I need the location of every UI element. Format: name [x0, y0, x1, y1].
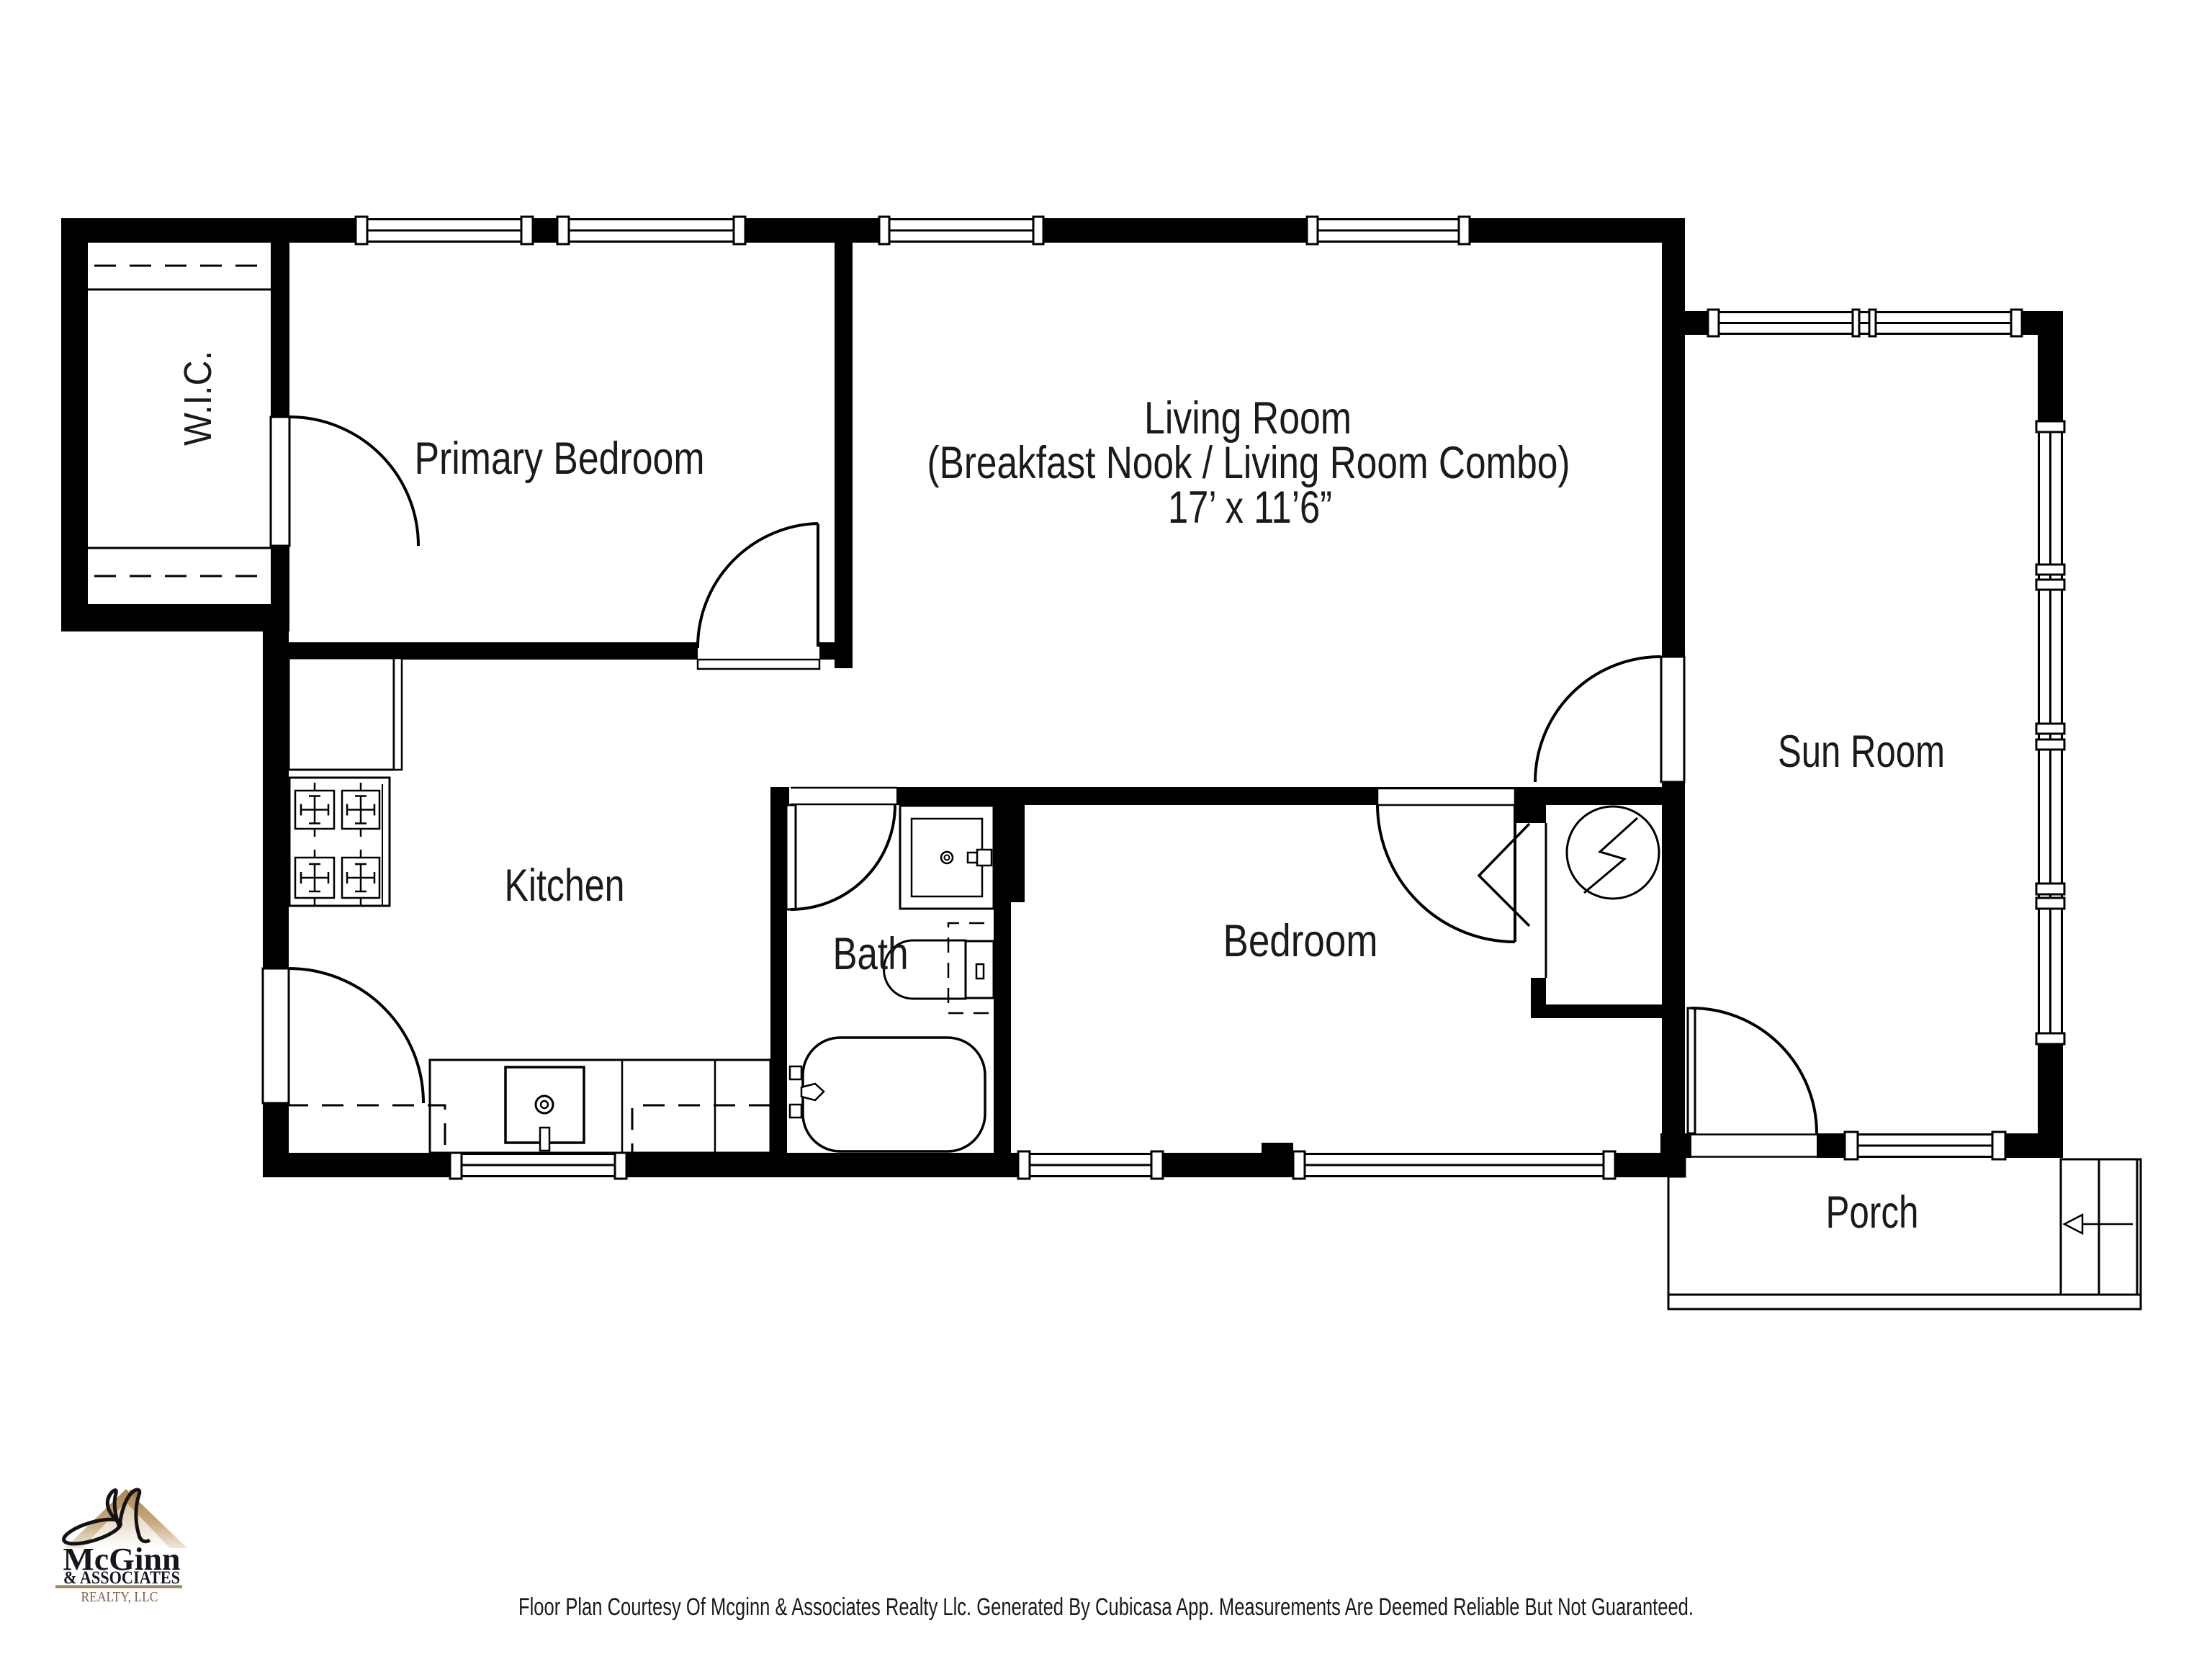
svg-text:Bath: Bath — [833, 929, 909, 979]
svg-text:Living Room: Living Room — [1144, 393, 1352, 444]
svg-text:REALTY, LLC: REALTY, LLC — [81, 1589, 158, 1605]
svg-text:Primary Bedroom: Primary Bedroom — [415, 433, 705, 484]
svg-text:& ASSOCIATES: & ASSOCIATES — [63, 1568, 180, 1588]
svg-text:(Breakfast Nook / Living Room: (Breakfast Nook / Living Room Combo) — [927, 438, 1570, 488]
svg-text:Sun Room: Sun Room — [1778, 727, 1945, 777]
svg-text:Bedroom: Bedroom — [1223, 916, 1378, 966]
svg-text:Porch: Porch — [1826, 1187, 1919, 1238]
svg-text:Kitchen: Kitchen — [505, 860, 625, 911]
svg-text:W.I.C.: W.I.C. — [176, 351, 220, 446]
svg-text:17’ x 11’6”: 17’ x 11’6” — [1168, 482, 1332, 533]
svg-text:Floor Plan Courtesy Of Mcginn: Floor Plan Courtesy Of Mcginn & Associat… — [518, 1593, 1694, 1621]
